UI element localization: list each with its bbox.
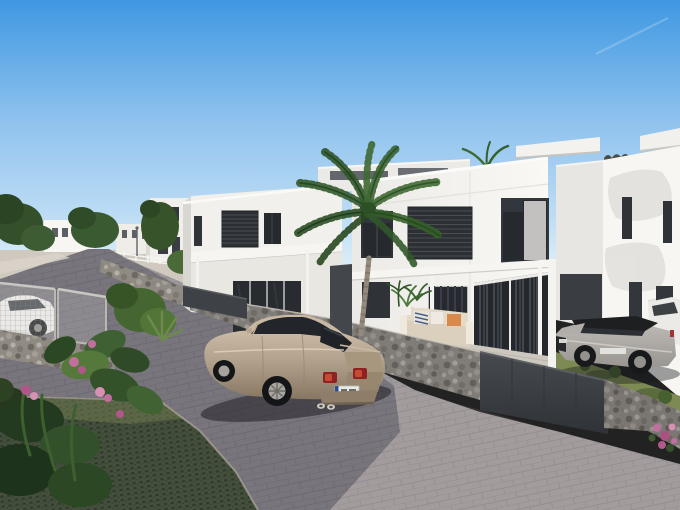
gap-gate <box>560 274 602 320</box>
slit-window <box>194 216 202 246</box>
antenna <box>330 312 333 316</box>
slit-window-2 <box>663 201 672 243</box>
render-canvas <box>0 0 680 510</box>
sliding-door-main <box>474 272 548 358</box>
slit-window-1 <box>622 197 632 239</box>
cushion-white <box>431 312 443 324</box>
louvered-window <box>222 211 258 247</box>
cushion-orange <box>447 314 461 326</box>
architectural-render <box>0 0 680 510</box>
corner-glass-window <box>502 199 548 262</box>
